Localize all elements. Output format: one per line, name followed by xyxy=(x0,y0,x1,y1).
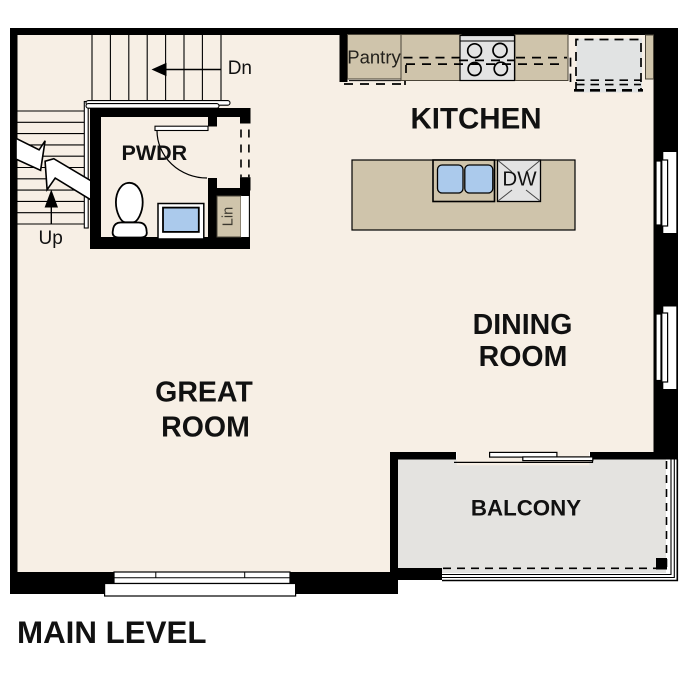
svg-text:BALCONY: BALCONY xyxy=(471,496,581,521)
svg-text:ROOM: ROOM xyxy=(479,341,568,373)
svg-text:MAIN LEVEL: MAIN LEVEL xyxy=(17,615,207,650)
svg-text:ROOM: ROOM xyxy=(161,412,250,444)
svg-text:Pantry: Pantry xyxy=(347,47,401,68)
svg-text:GREAT: GREAT xyxy=(155,377,253,409)
svg-text:Lin: Lin xyxy=(221,207,237,226)
svg-text:DW: DW xyxy=(502,168,537,191)
svg-text:Up: Up xyxy=(39,228,63,249)
svg-text:KITCHEN: KITCHEN xyxy=(410,103,541,136)
svg-text:Dn: Dn xyxy=(228,58,252,79)
svg-text:DINING: DINING xyxy=(473,309,573,341)
svg-text:PWDR: PWDR xyxy=(122,141,188,165)
